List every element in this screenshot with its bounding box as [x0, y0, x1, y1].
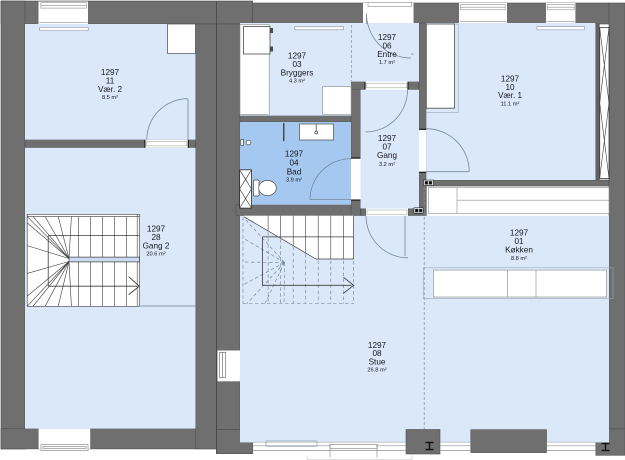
svg-text:1297: 1297	[285, 150, 304, 159]
svg-text:1.7 m²: 1.7 m²	[379, 60, 395, 66]
svg-text:Bad: Bad	[287, 168, 302, 177]
svg-text:3.2 m²: 3.2 m²	[379, 162, 395, 168]
svg-text:Vær. 2: Vær. 2	[98, 85, 123, 94]
svg-text:4.3 m²: 4.3 m²	[289, 79, 305, 85]
svg-text:11.1 m²: 11.1 m²	[501, 102, 520, 108]
svg-text:Vær. 1: Vær. 1	[498, 91, 523, 100]
svg-text:Gang: Gang	[377, 151, 397, 160]
svg-text:Stue: Stue	[369, 358, 386, 367]
svg-text:Entre: Entre	[377, 50, 397, 59]
svg-text:26.8 m²: 26.8 m²	[367, 368, 386, 374]
svg-text:8.8 m²: 8.8 m²	[511, 256, 527, 262]
svg-text:Bryggers: Bryggers	[281, 69, 314, 78]
svg-text:20.6 m²: 20.6 m²	[146, 252, 165, 258]
svg-text:Køkken: Køkken	[505, 246, 533, 255]
svg-text:Gang 2: Gang 2	[143, 242, 170, 251]
svg-text:8.5 m²: 8.5 m²	[102, 95, 118, 101]
svg-text:04: 04	[289, 159, 299, 168]
svg-text:3.9 m²: 3.9 m²	[286, 178, 302, 184]
